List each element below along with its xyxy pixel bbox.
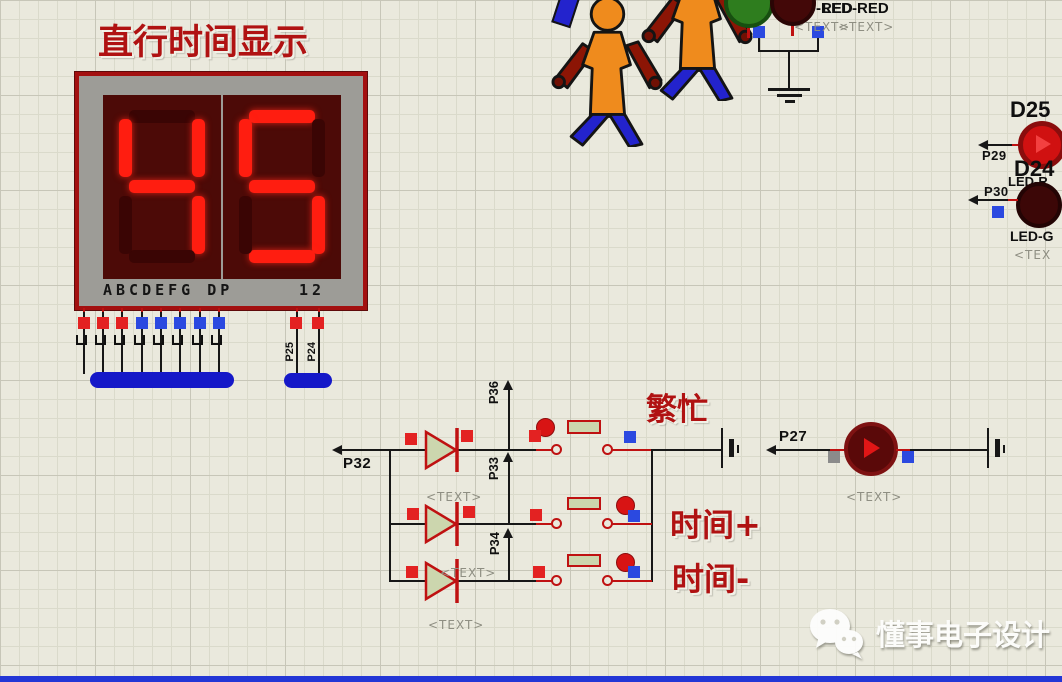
net-label-p33: P33 [486,457,501,480]
pin-label-mark [95,335,106,345]
button-cap [567,497,601,510]
watermark-text: 懂事电子设计 [876,612,1050,654]
button-cap [567,420,601,434]
label-time-minus: 时间- [672,554,749,600]
net-label-p30: P30 [984,184,1009,199]
pin-square [97,317,109,329]
pin-square [530,509,542,521]
schematic-canvas: 直行时间显示 ABCDEFG DP 12 [0,0,1062,682]
segment-bus-bar[interactable] [90,372,234,388]
pin-square [174,317,186,329]
segment-f [119,119,132,177]
led-green-off[interactable] [1016,182,1062,228]
pin-square [461,430,473,442]
wire [910,449,987,451]
segment-f [239,119,252,177]
text-placeholder: <TEXT> [846,490,902,504]
junction-square [628,566,640,578]
pin-square [529,430,541,442]
pin-square [312,317,324,329]
section-title: 直行时间显示 [98,14,308,65]
pin-square [194,317,206,329]
wire [508,536,510,581]
segment-c [192,196,205,254]
wire [651,449,653,582]
net-label-p34: P34 [487,532,502,555]
pin-square [406,566,418,578]
pin-square [407,508,419,520]
pin-square [213,317,225,329]
seven-segment-display[interactable]: ABCDEFG DP 12 [75,72,367,310]
wire [984,144,1012,146]
wire [774,449,832,451]
led-lead [1008,199,1018,201]
pin-square [78,317,90,329]
digit-tens [103,95,221,279]
segment-g [249,180,315,193]
wire [652,449,721,451]
segment-g [129,180,195,193]
pin-square [136,317,148,329]
segment-a [249,110,315,123]
wire [508,388,510,449]
button-terminal [551,575,562,586]
text-placeholder: <TEXT> [428,618,484,632]
segment-e [119,196,132,254]
segment-d [249,250,315,263]
pin-square [463,506,475,518]
net-label-p27: P27 [779,428,807,445]
segment-b [192,119,205,177]
pin-square [155,317,167,329]
led-red-label: LED-RED [822,0,889,17]
button-terminal [551,518,562,529]
wechat-icon [808,606,866,660]
led-arrow-icon [1036,135,1051,153]
display-pin-row-label: ABCDEFG DP [103,281,233,299]
pin-square [405,433,417,445]
text-placeholder: <TEXT> [440,566,496,580]
net-label-p29: P29 [982,148,1007,163]
text-placeholder-partial: <TEX [1014,248,1051,262]
label-time-plus: 时间+ [670,500,761,546]
pin-square [116,317,128,329]
net-label-p25: P25 [284,342,296,362]
wire [976,199,1010,201]
pin-square-gray [828,451,840,463]
wire [788,52,790,88]
wire [508,460,510,524]
pin-square [533,566,545,578]
label-busy: 繁忙 [646,384,708,429]
display-digit-index: 12 [299,281,325,299]
text-placeholder: <TEXT> [838,20,894,34]
segment-e [239,196,252,254]
pin-label-mark [114,335,125,345]
pin-label-mark [192,335,203,345]
diode[interactable] [424,558,470,604]
segment-d [129,250,195,263]
pin-square [290,317,302,329]
led-green-partial-label: LED-G [1010,228,1054,244]
digit-ones [223,95,341,279]
segment-c [312,196,325,254]
pin-label-mark [153,335,164,345]
net-label-p32: P32 [343,455,371,472]
segment-b [312,119,325,177]
digit-bus-bar[interactable] [284,373,332,388]
junction-square [628,510,640,522]
lead [896,449,910,451]
button-terminal [551,444,562,455]
watermark: 懂事电子设计 [808,606,1050,660]
junction-square [624,431,636,443]
button-cap [567,554,601,567]
junction-square [902,451,914,463]
pin-label-mark [76,335,87,345]
wire [389,449,391,582]
segment-a [129,110,195,123]
ref-d25: D25 [1010,97,1050,123]
bottom-edge-strip [0,676,1062,682]
pin-label-mark [134,335,145,345]
net-label-p24: P24 [306,342,318,362]
sounder-arrow-icon [864,438,880,458]
net-label-p36: P36 [486,381,501,404]
pin-label-mark [211,335,222,345]
pin-label-mark [172,335,183,345]
junction-square [992,206,1004,218]
junction-square [753,26,765,38]
